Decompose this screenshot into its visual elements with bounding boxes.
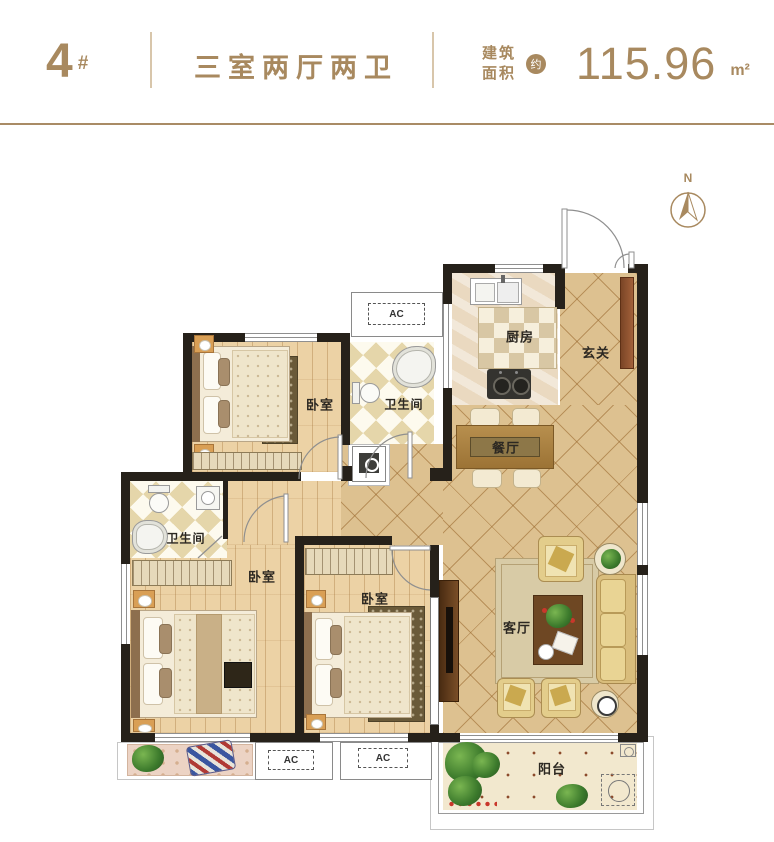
area-label-line1: 建筑 <box>482 44 516 64</box>
window <box>637 503 648 565</box>
room-label-bath-left: 卫生间 <box>166 530 205 547</box>
approx-badge: 约 <box>526 54 546 74</box>
floorplan-page: { "header": { "block_number": "4", "bloc… <box>0 0 774 842</box>
pillow <box>218 400 230 428</box>
wall <box>341 333 350 445</box>
headboard <box>131 610 140 718</box>
room-label-balcony: 阳台 <box>538 759 566 778</box>
dining-chair <box>513 469 541 488</box>
wall <box>183 333 245 342</box>
toilet <box>146 485 172 515</box>
header-divider-1 <box>150 32 152 88</box>
wall <box>295 536 392 545</box>
wall <box>295 536 304 742</box>
block-number: 4# <box>46 34 89 89</box>
room-label-bedroom-top: 卧室 <box>306 395 334 414</box>
dresser <box>192 452 302 470</box>
nightstand <box>194 335 214 353</box>
area-value: 115.96 <box>576 38 716 90</box>
bedroom-top-door-arc <box>296 432 346 482</box>
nightstand <box>306 590 326 608</box>
window <box>495 264 543 273</box>
nightstand <box>306 714 326 730</box>
room-label-dining: 餐厅 <box>492 438 520 457</box>
north-label: N <box>684 171 693 185</box>
plate <box>538 644 554 660</box>
wall <box>250 733 320 742</box>
armchair <box>497 678 535 718</box>
area-label: 建筑 面积 <box>482 44 516 84</box>
wall <box>121 644 130 742</box>
bath-top-door-arc <box>362 430 416 482</box>
nightstand <box>133 590 155 608</box>
wall <box>223 481 228 539</box>
compass: N <box>660 168 716 238</box>
wall <box>637 655 648 742</box>
wall <box>443 388 452 481</box>
pillow <box>218 358 230 386</box>
blanket <box>344 616 410 714</box>
nightstand <box>133 719 155 732</box>
wall-hollow <box>430 597 439 725</box>
room-label-bedroom-bottom: 卧室 <box>361 589 389 608</box>
wardrobe <box>305 548 393 575</box>
tray <box>552 631 579 655</box>
sofa <box>596 574 636 684</box>
header-rule <box>0 123 774 125</box>
wall <box>637 565 648 575</box>
headboard <box>192 346 200 442</box>
faucet-icon <box>501 275 505 283</box>
bed-runner <box>196 614 222 714</box>
area-label-line2: 面积 <box>482 64 516 84</box>
headboard <box>304 612 312 718</box>
side-table <box>594 543 626 575</box>
floor-drain <box>620 744 636 757</box>
pillow <box>159 624 172 654</box>
bedroom-bottom-door-arc <box>388 544 434 592</box>
tv <box>446 607 453 673</box>
block-number-suffix: # <box>78 53 90 74</box>
wall <box>637 264 648 503</box>
room-label-living: 客厅 <box>503 618 531 637</box>
entry-door-arc <box>558 206 640 272</box>
window <box>121 564 130 644</box>
bed-bench <box>224 662 252 688</box>
master-door-arc <box>240 490 292 546</box>
wall <box>430 725 439 742</box>
north-arrow-icon-right <box>688 192 697 220</box>
header-divider-2 <box>432 32 434 88</box>
room-label-bedroom-master: 卧室 <box>248 567 276 586</box>
side-table <box>591 690 619 718</box>
room-label-kitchen: 厨房 <box>506 327 534 346</box>
window <box>320 733 408 742</box>
pillow <box>330 625 342 655</box>
block-number-value: 4 <box>46 35 74 88</box>
coffee-table <box>533 595 583 665</box>
pillow <box>330 668 342 698</box>
dining-chair <box>472 469 502 488</box>
pillow <box>159 668 172 698</box>
room-label-entry: 玄关 <box>582 343 610 362</box>
toilet <box>352 380 382 406</box>
window <box>155 733 250 742</box>
layout-title: 三室两厅两卫 <box>168 46 424 85</box>
window <box>637 575 648 655</box>
room-label-bath-top: 卫生间 <box>384 396 423 413</box>
wall <box>183 333 192 481</box>
window <box>443 304 452 388</box>
entry-cabinet <box>620 277 634 369</box>
ac-label-bottom-1: AC <box>268 750 314 770</box>
kitchen-sink <box>470 278 522 305</box>
area-unit: m² <box>730 62 750 80</box>
ac-label-bottom-2: AC <box>358 748 408 768</box>
balcony-table-dashed <box>601 774 635 806</box>
north-arrow-icon <box>679 192 688 220</box>
armchair <box>538 536 584 582</box>
blanket <box>232 350 288 438</box>
wall <box>121 733 155 742</box>
bathtub <box>392 346 436 388</box>
ac-label-top: AC <box>368 303 425 325</box>
wardrobe <box>132 560 232 586</box>
wall <box>443 264 452 304</box>
stove <box>487 369 531 399</box>
armchair <box>541 678 581 718</box>
wall <box>430 468 443 481</box>
wall <box>121 472 130 564</box>
window <box>245 333 317 342</box>
wall <box>121 472 301 481</box>
balcony-slider-door <box>460 735 618 741</box>
tv-stand <box>439 580 459 702</box>
area-group: 建筑 面积 约 115.96 m² <box>482 38 750 90</box>
sink <box>196 486 220 510</box>
